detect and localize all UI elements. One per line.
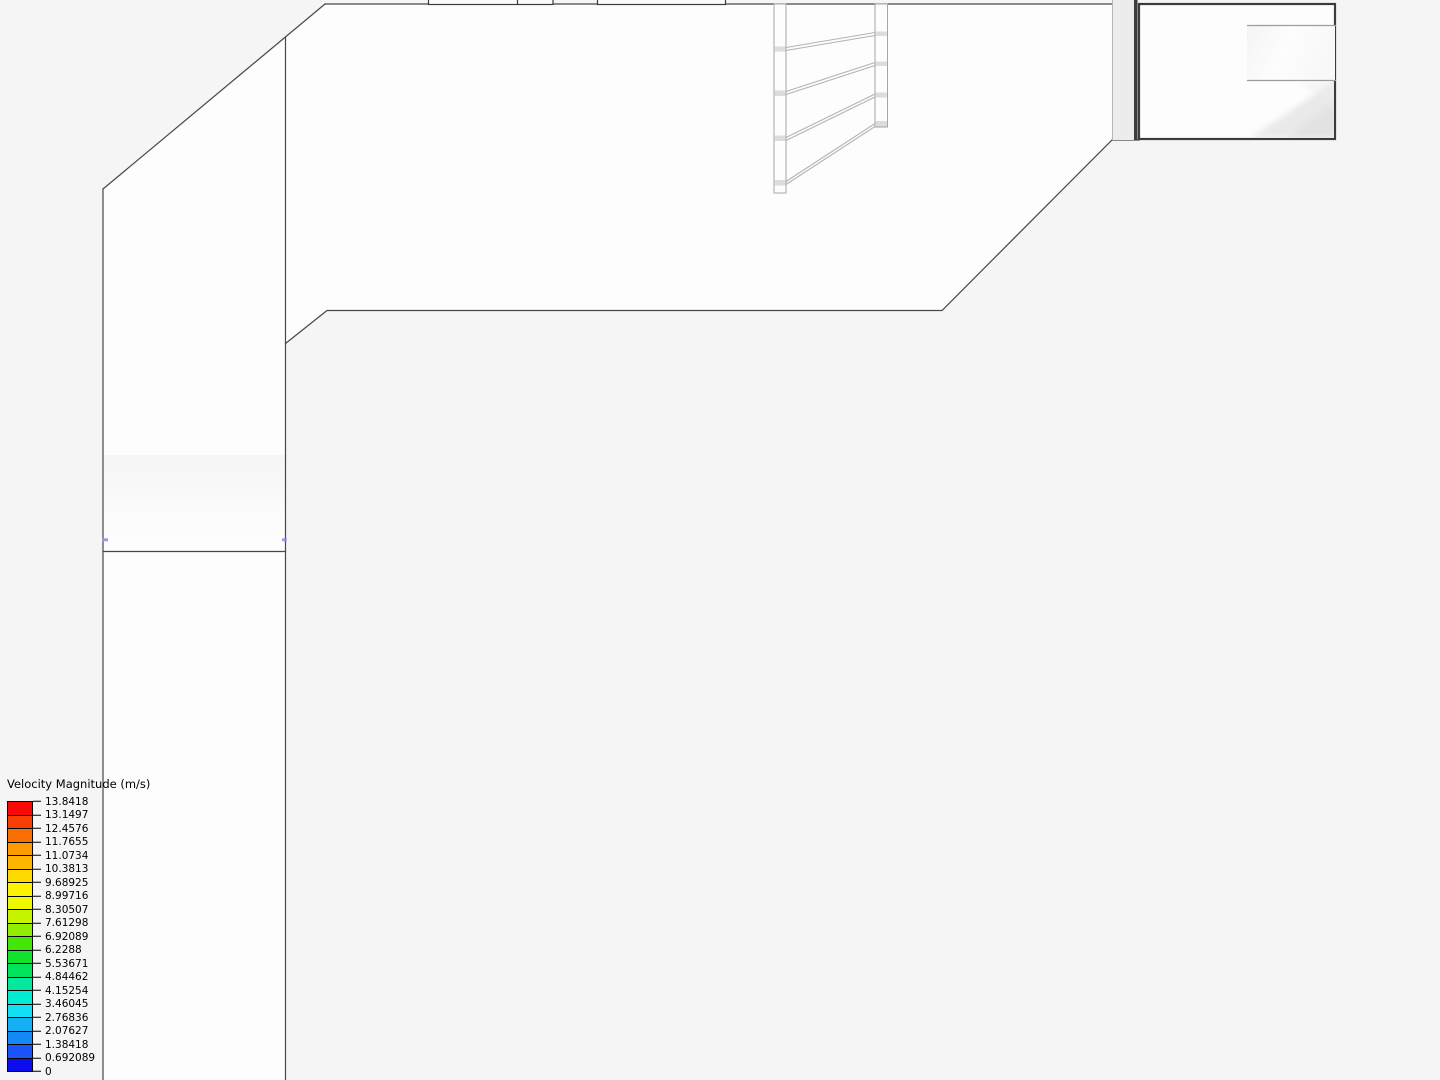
tick-mark <box>33 869 41 870</box>
tick-mark <box>33 855 41 856</box>
tick-label: 2.76836 <box>45 1012 88 1023</box>
legend-tick: 13.1497 <box>33 810 88 821</box>
tick-mark <box>33 801 41 802</box>
window-box <box>1139 4 1336 139</box>
tick-label: 6.92089 <box>45 931 88 942</box>
tick-mark <box>33 977 41 978</box>
legend-title: Velocity Magnitude (m/s) <box>7 778 157 791</box>
legend-swatch <box>7 936 33 951</box>
wall-column <box>1113 0 1138 140</box>
tick-mark <box>33 1031 41 1032</box>
hallway-shading <box>104 455 285 540</box>
tick-label: 2.07627 <box>45 1026 88 1037</box>
legend-tick: 8.30507 <box>33 904 88 915</box>
legend-tick: 11.7655 <box>33 837 88 848</box>
legend-swatch <box>7 855 33 870</box>
window-inner-panel <box>1247 26 1336 81</box>
tick-label: 1.38418 <box>45 1039 88 1050</box>
tick-label: 12.4576 <box>45 823 88 834</box>
legend-swatch <box>7 963 33 978</box>
legend-tick: 9.68925 <box>33 877 88 888</box>
legend-swatch <box>7 815 33 830</box>
tick-mark <box>33 815 41 816</box>
legend-swatch <box>7 828 33 843</box>
legend-swatch <box>7 1058 33 1073</box>
legend-swatch <box>7 1017 33 1032</box>
tick-mark <box>33 882 41 883</box>
velocity-marker <box>282 538 287 541</box>
tick-label: 0.692089 <box>45 1053 95 1064</box>
tick-label: 9.68925 <box>45 877 88 888</box>
legend-swatch <box>7 801 33 816</box>
tick-mark <box>33 1071 41 1072</box>
tick-label: 7.61298 <box>45 918 88 929</box>
tick-label: 10.3813 <box>45 864 88 875</box>
legend-swatch <box>7 990 33 1005</box>
tick-mark <box>33 1004 41 1005</box>
tick-mark <box>33 923 41 924</box>
tick-label: 4.84462 <box>45 972 88 983</box>
legend-swatch <box>7 869 33 884</box>
tick-label: 13.1497 <box>45 810 88 821</box>
legend-tick: 7.61298 <box>33 918 88 929</box>
legend-tick: 2.76836 <box>33 1012 88 1023</box>
legend-tick: 1.38418 <box>33 1039 88 1050</box>
tick-mark <box>33 842 41 843</box>
legend-tick: 0 <box>33 1066 52 1077</box>
tick-label: 5.53671 <box>45 958 88 969</box>
tick-mark <box>33 1058 41 1059</box>
tick-label: 8.99716 <box>45 891 88 902</box>
legend-swatch <box>7 896 33 911</box>
legend-tick: 4.15254 <box>33 985 88 996</box>
tick-mark <box>33 963 41 964</box>
legend-tick: 11.0734 <box>33 850 88 861</box>
tick-label: 4.15254 <box>45 985 88 996</box>
legend-tick: 5.53671 <box>33 958 88 969</box>
tick-mark <box>33 1017 41 1018</box>
legend-tick: 6.2288 <box>33 945 82 956</box>
tick-mark <box>33 828 41 829</box>
legend-tick: 2.07627 <box>33 1026 88 1037</box>
tick-mark <box>33 936 41 937</box>
tick-mark <box>33 990 41 991</box>
legend-tick: 10.3813 <box>33 864 88 875</box>
tick-label: 11.0734 <box>45 850 88 861</box>
tick-label: 8.30507 <box>45 904 88 915</box>
tick-mark <box>33 1044 41 1045</box>
legend-swatch <box>7 1044 33 1059</box>
legend-swatch <box>7 950 33 965</box>
tick-label: 0 <box>45 1066 52 1077</box>
legend-swatch <box>7 842 33 857</box>
tick-label: 6.2288 <box>45 945 82 956</box>
legend-swatch <box>7 923 33 938</box>
legend-tick: 4.84462 <box>33 972 88 983</box>
legend-tick: 13.8418 <box>33 796 88 807</box>
tick-label: 3.46045 <box>45 999 88 1010</box>
color-legend: Velocity Magnitude (m/s) 13.841813.14971… <box>7 778 157 1073</box>
legend-tick: 6.92089 <box>33 931 88 942</box>
legend-body: 13.841813.149712.457611.765511.073410.38… <box>7 801 157 1073</box>
tick-mark <box>33 909 41 910</box>
legend-swatch <box>7 909 33 924</box>
legend-tick: 8.99716 <box>33 891 88 902</box>
legend-swatch <box>7 1031 33 1046</box>
railing-post <box>774 4 786 193</box>
legend-tick: 3.46045 <box>33 999 88 1010</box>
viewport-canvas[interactable] <box>0 0 1440 1080</box>
legend-tick: 12.4576 <box>33 823 88 834</box>
tick-label: 13.8418 <box>45 796 88 807</box>
legend-swatch <box>7 977 33 992</box>
tick-mark <box>33 896 41 897</box>
tick-mark <box>33 950 41 951</box>
legend-swatch <box>7 882 33 897</box>
legend-swatch <box>7 1004 33 1019</box>
legend-tick: 0.692089 <box>33 1053 95 1064</box>
tick-label: 11.7655 <box>45 837 88 848</box>
velocity-marker <box>103 538 109 541</box>
